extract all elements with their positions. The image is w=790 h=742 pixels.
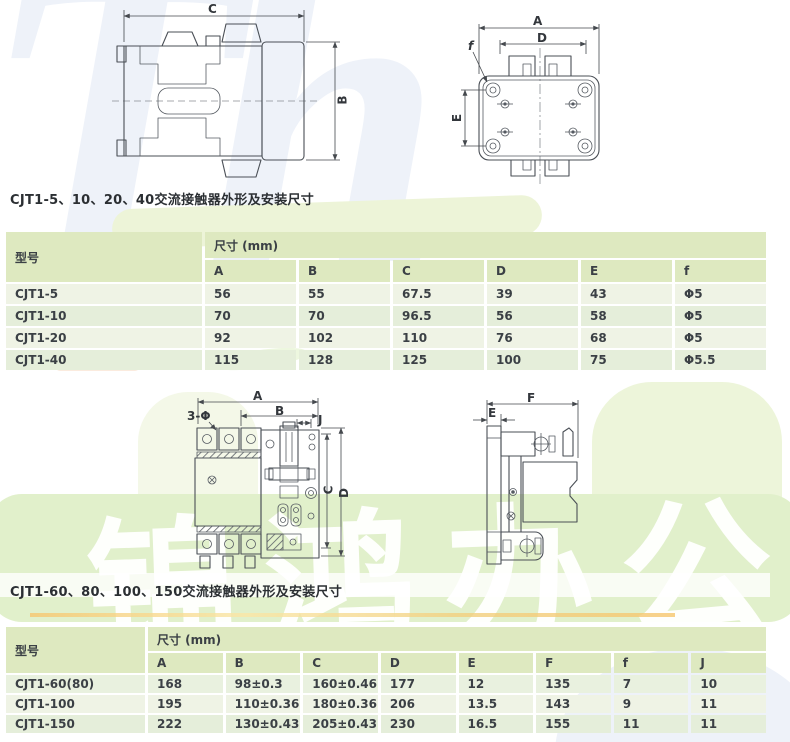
dim-label-j: J [318,414,322,426]
dim-value: 110±0.36 [226,695,301,713]
dim-value: 115 [205,350,296,370]
dim-value: 70 [205,306,296,326]
dim-label-e: E [488,407,496,419]
model-name: CJT1-100 [6,695,145,713]
dim-value: 135 [536,675,611,693]
seal-watermark-band [0,494,790,622]
dim-value: 55 [299,284,390,304]
dim-label-f: f [468,40,473,52]
dim-label-b: B [337,95,349,104]
dim-value: 13.5 [459,695,534,713]
col-header: B [299,260,390,282]
dim-value: 68 [581,328,672,348]
dim-value: 11 [691,715,766,733]
dim-value: 58 [581,306,672,326]
dim-value: 16.5 [459,715,534,733]
dim-label-a: A [533,15,542,27]
large-contactor-front-view: A B J 3-Φ C D [183,392,373,574]
size-header: 尺寸 (mm) [148,627,766,651]
model-name: CJT1-5 [6,284,202,304]
dim-value: 96.5 [393,306,484,326]
col-header: f [614,653,689,673]
dim-value: 10 [691,675,766,693]
dim-value: 130±0.43 [226,715,301,733]
dim-value: 110 [393,328,484,348]
dim-value: Φ5 [675,328,766,348]
col-header: D [487,260,578,282]
small-contactor-top-view: A D E f [445,2,665,187]
dim-value: 11 [691,695,766,713]
dim-value: 70 [299,306,390,326]
dim-value: 100 [487,350,578,370]
dim-value: 67.5 [393,284,484,304]
dim-label-b: B [275,405,284,417]
dim-value: 75 [581,350,672,370]
dim-label-d: D [537,32,547,44]
col-header: F [536,653,611,673]
col-header: J [691,653,766,673]
dim-value: 205±0.43 [303,715,378,733]
col-header: E [581,260,672,282]
small-contactor-side-view: C B [110,2,365,184]
dim-value: 125 [393,350,484,370]
col-header: D [381,653,456,673]
model-name: CJT1-150 [6,715,145,733]
dim-value: 160±0.46 [303,675,378,693]
section-heading-large-models: CJT1-60、80、100、150交流接触器外形及安装尺寸 [10,581,342,600]
dim-label-a: A [253,390,262,402]
dim-value: 9 [614,695,689,713]
col-header: A [205,260,296,282]
dim-label-d: D [338,488,350,498]
dim-label-c: C [322,486,334,495]
contactor-side-view-drawing [110,2,365,184]
dim-value: 43 [581,284,672,304]
dim-label-f: F [527,392,535,404]
col-header: C [393,260,484,282]
dim-value: 12 [459,675,534,693]
model-name: CJT1-20 [6,328,202,348]
dim-value: 177 [381,675,456,693]
dim-label-e: E [451,114,463,122]
dim-value: 92 [205,328,296,348]
dimension-table-small-models: 型号 尺寸 (mm) A B C D E f CJT1-5 56 55 67.5… [6,232,766,370]
dim-value: 11 [614,715,689,733]
contactor-front-view-drawing [183,392,373,574]
model-name: CJT1-60(80) [6,675,145,693]
dimension-table-large-models: 型号 尺寸 (mm) A B C D E F f J CJT1-60(80) 1… [6,627,766,733]
datasheet-page: Th 锦鸿办公 [0,0,790,742]
dim-value: 39 [487,284,578,304]
dim-value: 180±0.36 [303,695,378,713]
dim-value: 76 [487,328,578,348]
dim-value: 206 [381,695,456,713]
hole-count-label: 3-Φ [187,410,211,422]
model-column-header: 型号 [6,232,202,282]
dim-value: 195 [148,695,223,713]
dim-value: 102 [299,328,390,348]
size-header: 尺寸 (mm) [205,232,766,258]
dim-label-c: C [208,3,217,15]
dim-value: 143 [536,695,611,713]
dim-value: 222 [148,715,223,733]
model-name: CJT1-40 [6,350,202,370]
model-column-header: 型号 [6,627,145,673]
col-header: f [675,260,766,282]
dim-value: Φ5 [675,284,766,304]
dim-value: 128 [299,350,390,370]
col-header: B [226,653,301,673]
dim-value: 230 [381,715,456,733]
dim-value: 168 [148,675,223,693]
large-contactor-side-view: F E [443,392,648,574]
dim-value: 7 [614,675,689,693]
col-header: A [148,653,223,673]
col-header: C [303,653,378,673]
dim-value: Φ5 [675,306,766,326]
dim-value: 56 [487,306,578,326]
col-header: E [459,653,534,673]
dim-value: 56 [205,284,296,304]
seal-watermark-edge [30,613,675,617]
model-name: CJT1-10 [6,306,202,326]
contactor-side-view-drawing [443,392,648,574]
section-heading-small-models: CJT1-5、10、20、40交流接触器外形及安装尺寸 [10,189,314,208]
dim-value: Φ5.5 [675,350,766,370]
contactor-top-view-drawing [445,2,665,187]
dim-value: 155 [536,715,611,733]
dim-value: 98±0.3 [226,675,301,693]
